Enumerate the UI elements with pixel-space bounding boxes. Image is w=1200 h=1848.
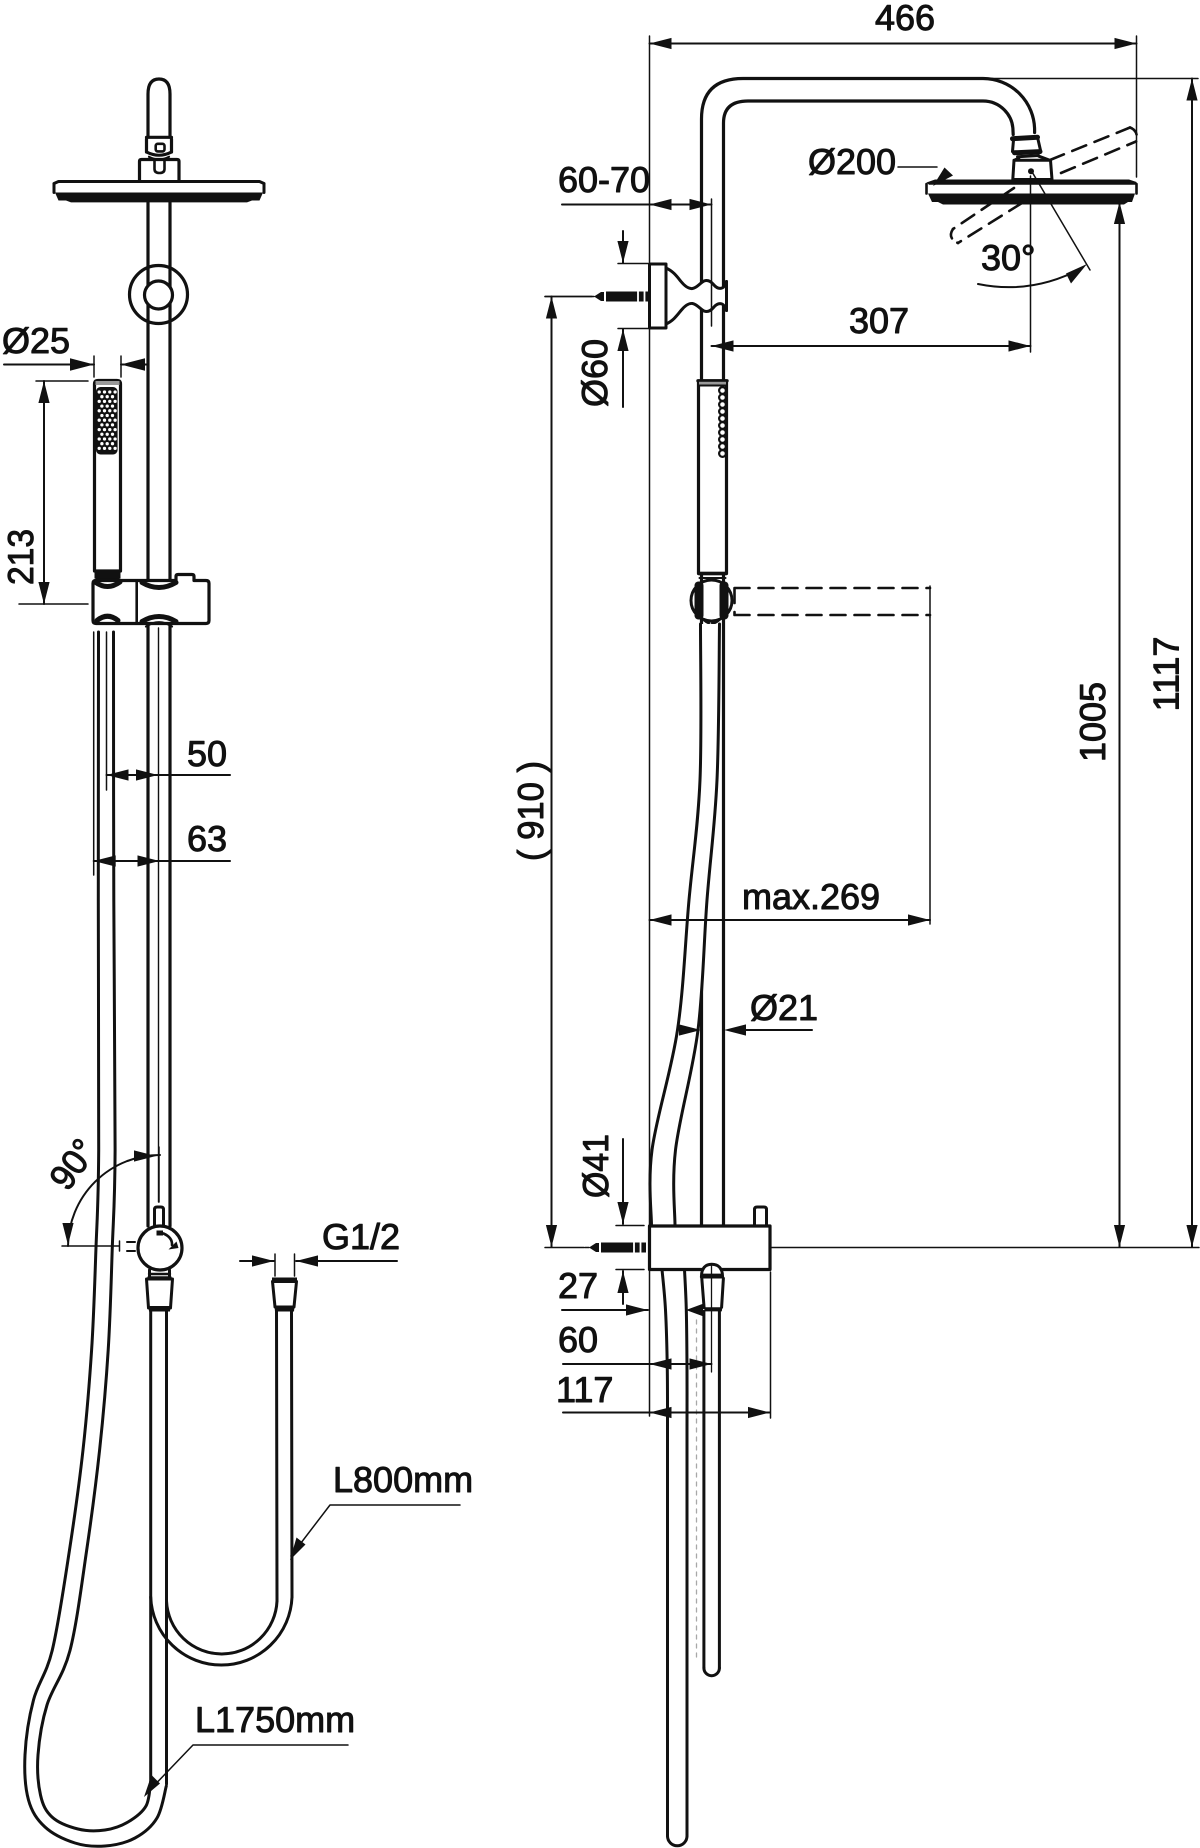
svg-text:1117: 1117 <box>1146 637 1187 712</box>
svg-text:27: 27 <box>558 1265 598 1306</box>
svg-text:Ø21: Ø21 <box>750 987 818 1028</box>
svg-text:466: 466 <box>875 0 935 38</box>
svg-text:G1/2: G1/2 <box>322 1216 400 1257</box>
svg-text:60: 60 <box>558 1319 598 1360</box>
svg-text:307: 307 <box>849 300 909 341</box>
svg-text:Ø41: Ø41 <box>575 1134 616 1198</box>
svg-text:Ø200: Ø200 <box>808 141 896 182</box>
svg-text:max.269: max.269 <box>742 876 880 917</box>
svg-text:50: 50 <box>187 733 227 774</box>
svg-text:1005: 1005 <box>1072 682 1113 762</box>
svg-text:( 910 ): ( 910 ) <box>510 761 551 861</box>
svg-text:213: 213 <box>0 529 41 585</box>
svg-text:63: 63 <box>187 818 227 859</box>
svg-text:117: 117 <box>556 1369 613 1410</box>
svg-text:L800mm: L800mm <box>333 1459 473 1500</box>
svg-text:Ø25: Ø25 <box>2 320 70 361</box>
svg-text:60-70: 60-70 <box>558 159 650 200</box>
svg-text:30°: 30° <box>981 237 1035 278</box>
svg-text:Ø60: Ø60 <box>574 339 615 407</box>
svg-text:90°: 90° <box>41 1131 105 1197</box>
svg-text:L1750mm: L1750mm <box>195 1699 355 1740</box>
